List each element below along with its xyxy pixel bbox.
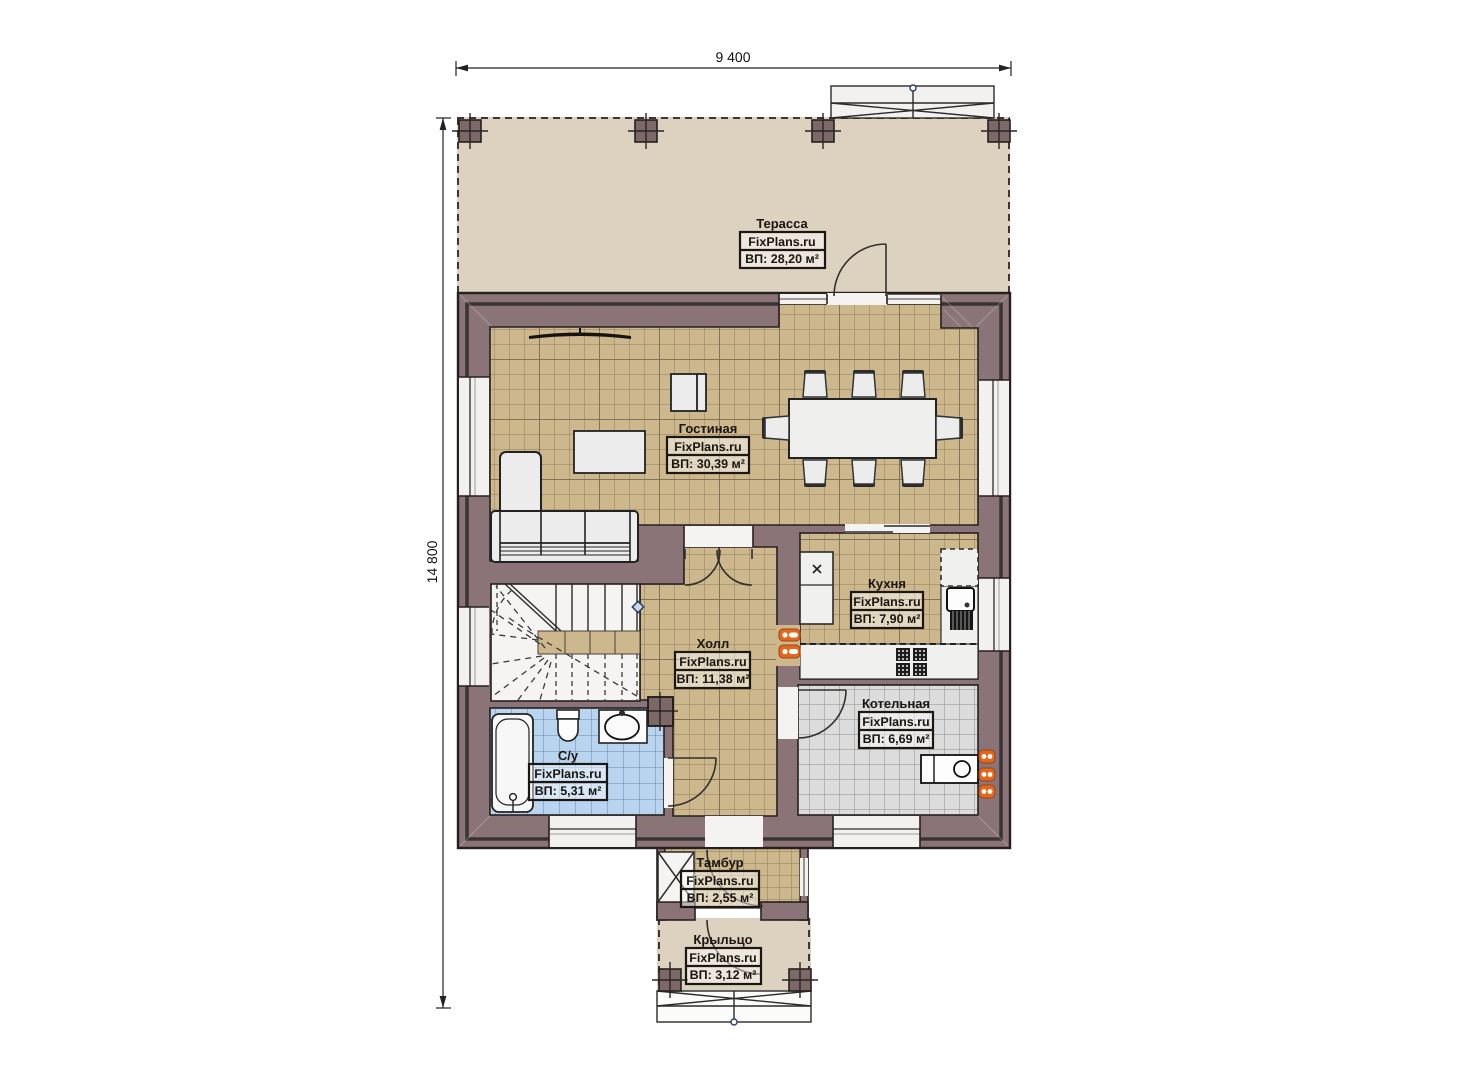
svg-text:FixPlans.ru: FixPlans.ru (679, 655, 746, 669)
svg-text:FixPlans.ru: FixPlans.ru (862, 715, 929, 729)
svg-text:9 400: 9 400 (715, 49, 750, 65)
svg-text:FixPlans.ru: FixPlans.ru (534, 767, 601, 781)
svg-text:Холл: Холл (697, 636, 730, 651)
svg-text:ВП: 2,55 м²: ВП: 2,55 м² (687, 891, 754, 905)
svg-text:ВП: 6,69 м²: ВП: 6,69 м² (863, 732, 930, 746)
svg-text:ВП: 5,31 м²: ВП: 5,31 м² (535, 784, 602, 798)
svg-text:FixPlans.ru: FixPlans.ru (748, 235, 815, 249)
svg-text:FixPlans.ru: FixPlans.ru (674, 440, 741, 454)
svg-text:14 800: 14 800 (424, 540, 440, 583)
svg-text:Тамбур: Тамбур (696, 855, 743, 870)
svg-text:ВП: 30,39 м²: ВП: 30,39 м² (671, 457, 745, 471)
svg-text:С/у: С/у (558, 748, 579, 763)
svg-text:Кухня: Кухня (868, 576, 906, 591)
svg-text:Крыльцо: Крыльцо (693, 932, 752, 947)
svg-text:FixPlans.ru: FixPlans.ru (689, 951, 756, 965)
svg-text:ВП: 3,12 м²: ВП: 3,12 м² (690, 968, 757, 982)
svg-text:Терасса: Терасса (756, 216, 808, 231)
svg-text:FixPlans.ru: FixPlans.ru (853, 595, 920, 609)
svg-text:ВП: 28,20 м²: ВП: 28,20 м² (745, 252, 819, 266)
svg-text:FixPlans.ru: FixPlans.ru (686, 874, 753, 888)
svg-text:ВП: 11,38 м²: ВП: 11,38 м² (676, 672, 749, 686)
svg-text:Котельная: Котельная (862, 696, 930, 711)
svg-text:ВП: 7,90 м²: ВП: 7,90 м² (854, 612, 921, 626)
svg-text:Гостиная: Гостиная (679, 421, 738, 436)
